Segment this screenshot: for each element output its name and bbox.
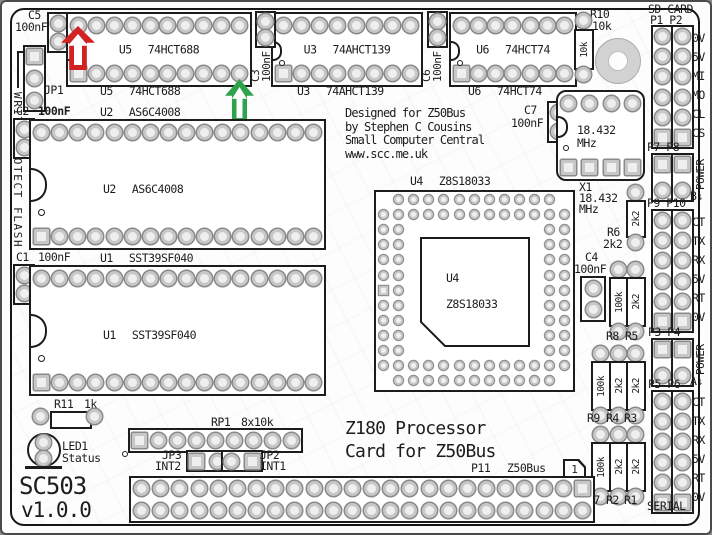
pad: [125, 375, 140, 390]
pad: [655, 342, 670, 357]
r4-ref: R4: [606, 412, 619, 424]
pga-pad: [470, 195, 479, 204]
credits-text: Designed for Z50Bus by Stephen C Cousins…: [345, 107, 484, 161]
resistor-r5: 2k2: [626, 277, 646, 327]
pad: [172, 503, 187, 518]
pga-pad: [379, 316, 388, 325]
pad: [675, 294, 690, 309]
socket-u2: U2AS6C4008: [29, 119, 326, 250]
pga-pad: [500, 376, 509, 385]
pga-pad: [545, 225, 554, 234]
pad: [249, 481, 264, 496]
pad: [230, 503, 245, 518]
pad: [655, 110, 670, 125]
r11-ref: R11: [54, 398, 73, 410]
u5-sublabel: U574HCT688: [100, 85, 180, 97]
down-arrow-icon: ↓: [696, 189, 702, 203]
c6-label: C6100nF: [421, 44, 443, 82]
pga-pad: [470, 210, 479, 219]
u3-pin1-dot: [279, 60, 285, 66]
pad: [125, 66, 140, 81]
power-a-tag: A↓: [690, 375, 703, 387]
green-up-arrow-icon: [225, 79, 254, 123]
pad: [34, 271, 49, 286]
u5-inner-label: U574HCT688: [68, 43, 250, 55]
pga-pad: [455, 210, 464, 219]
pad: [179, 125, 194, 140]
r1-ref: R1: [624, 494, 637, 506]
pad: [604, 160, 619, 175]
u6-pin1-dot: [457, 60, 463, 66]
pad: [33, 409, 48, 424]
u4-inner-ref: U4: [446, 272, 459, 284]
p5-pin-5v: 5V: [692, 453, 705, 465]
pga-pad: [560, 210, 569, 219]
pga-pad: [394, 331, 403, 340]
resistor-r3: 2k2: [626, 361, 646, 411]
c7-ref: C7: [524, 104, 537, 116]
pad: [655, 274, 670, 289]
pad: [143, 271, 158, 286]
pad: [125, 18, 140, 33]
pga-pad: [560, 286, 569, 295]
pad: [306, 271, 321, 286]
pad: [312, 66, 327, 81]
pad: [161, 125, 176, 140]
pad: [107, 271, 122, 286]
pad: [576, 13, 591, 28]
pad: [276, 66, 291, 81]
pad: [582, 160, 597, 175]
u2-notch: [31, 168, 47, 202]
pad: [170, 433, 185, 448]
pad: [270, 229, 285, 244]
pad: [367, 18, 382, 33]
mounting-hole: [595, 38, 641, 84]
u3-sublabel: U374AHCT139: [297, 85, 384, 97]
pad: [252, 375, 267, 390]
pad: [537, 503, 552, 518]
pad: [505, 18, 520, 33]
connector-p11-z50bus: [129, 476, 595, 523]
pad: [132, 433, 147, 448]
c1-value: 100nF: [38, 251, 70, 263]
sd-pin-mo: MO: [692, 89, 705, 101]
pga-pad: [560, 240, 569, 249]
p5-pin-tx: TX: [692, 415, 705, 427]
pga-pad: [560, 316, 569, 325]
pga-pad: [379, 210, 388, 219]
pad: [270, 271, 285, 286]
pga-pad: [379, 301, 388, 310]
pad: [628, 262, 643, 277]
pad: [179, 375, 194, 390]
pga-pad: [439, 361, 448, 370]
r8-ref: R8: [606, 330, 619, 342]
pad: [87, 409, 102, 424]
pad: [230, 481, 245, 496]
pad: [143, 66, 158, 81]
pga-pad: [394, 316, 403, 325]
pad: [488, 18, 503, 33]
pad: [107, 66, 122, 81]
pad: [628, 346, 643, 361]
sd-pin-cs: CS: [692, 127, 705, 139]
pad: [576, 67, 591, 82]
pga-pad: [379, 286, 388, 295]
pad: [196, 18, 211, 33]
pad: [441, 481, 456, 496]
pad: [611, 346, 626, 361]
pad: [233, 229, 248, 244]
u1-pin1-dot: [38, 355, 45, 362]
p5-p6-label: P5 P6: [648, 378, 680, 390]
pad: [70, 271, 85, 286]
pad: [479, 503, 494, 518]
pga-pad: [394, 286, 403, 295]
led1-cathode-bar: [25, 466, 62, 469]
pga-pad: [545, 210, 554, 219]
pad: [675, 274, 690, 289]
p3-p4-label: P3 P4: [648, 326, 680, 338]
pga-pad: [530, 210, 539, 219]
pad: [383, 481, 398, 496]
pga-pad: [379, 271, 388, 280]
pad: [582, 96, 597, 111]
pad: [326, 481, 341, 496]
pad: [189, 454, 204, 469]
c5-value: 100nF: [15, 21, 47, 33]
power-b-label: POWER: [695, 146, 706, 190]
pad: [232, 18, 247, 33]
pga-pad: [424, 376, 433, 385]
resistor-r9: 100k: [591, 361, 611, 411]
pad: [288, 271, 303, 286]
jp3-signal: INT2: [155, 460, 181, 472]
board-title: Z180 Processor Card for Z50Bus: [345, 417, 496, 463]
rp1-ref: RP1: [211, 416, 230, 428]
jumper-jp1: [23, 45, 46, 112]
pad: [88, 375, 103, 390]
pad: [196, 66, 211, 81]
pad: [215, 125, 230, 140]
pad: [125, 125, 140, 140]
pad: [288, 375, 303, 390]
pad: [540, 66, 555, 81]
pga-pad: [545, 316, 554, 325]
pad: [655, 294, 670, 309]
pga-pad: [394, 361, 403, 370]
pad: [270, 125, 285, 140]
c1-ref: C1: [16, 251, 29, 263]
pga-pad: [515, 361, 524, 370]
jp1-label: JP1: [44, 84, 63, 96]
pad: [153, 481, 168, 496]
x1-unit: MHz: [579, 203, 598, 215]
pad: [385, 18, 400, 33]
pad: [270, 375, 285, 390]
pad: [655, 455, 670, 470]
pga-pad: [545, 301, 554, 310]
pga-pad: [545, 376, 554, 385]
pga-pad: [455, 361, 464, 370]
pad: [189, 433, 204, 448]
pad: [307, 481, 322, 496]
pad: [385, 66, 400, 81]
pad: [160, 66, 175, 81]
pad: [252, 229, 267, 244]
p5-pin-rt: RT: [692, 472, 705, 484]
pad: [143, 229, 158, 244]
pga-pad: [379, 225, 388, 234]
pad: [211, 503, 226, 518]
pad: [172, 481, 187, 496]
pad: [287, 481, 302, 496]
pga-pad: [409, 195, 418, 204]
pad: [249, 503, 264, 518]
pad: [655, 157, 670, 172]
pad: [233, 375, 248, 390]
crystal-socket: 18.432 MHz: [556, 90, 645, 181]
pga-pad: [394, 376, 403, 385]
pad: [460, 503, 475, 518]
pad: [430, 14, 445, 29]
p5-pin-rx: RX: [692, 434, 705, 446]
resistor-r11: [50, 411, 92, 429]
pad: [88, 125, 103, 140]
pad: [70, 375, 85, 390]
pad: [197, 125, 212, 140]
pga-pad: [424, 210, 433, 219]
pad: [349, 66, 364, 81]
pad: [675, 414, 690, 429]
sd-pin-5v: 5V: [692, 51, 705, 63]
pga-pad: [394, 225, 403, 234]
pad: [628, 235, 643, 250]
pad: [258, 30, 273, 45]
sd-pin-0v: 0V: [692, 32, 705, 44]
pad: [233, 271, 248, 286]
pga-pad: [409, 361, 418, 370]
jp2-signal: INT1: [260, 460, 286, 472]
pga-pad: [515, 195, 524, 204]
pad: [288, 229, 303, 244]
crystal-unit: MHz: [577, 137, 596, 149]
pad: [294, 66, 309, 81]
pad: [36, 451, 51, 466]
p9-pin-tx: TX: [692, 235, 705, 247]
pad: [471, 66, 486, 81]
crystal-pin1-dot: [563, 145, 569, 151]
pga-pad: [470, 361, 479, 370]
resistor-r10: 10k: [574, 29, 594, 70]
connector-p6: [671, 390, 694, 514]
pad: [34, 229, 49, 244]
r2-ref: R2: [606, 494, 619, 506]
pad: [402, 503, 417, 518]
led1-label: Status: [62, 452, 101, 464]
pad: [258, 14, 273, 29]
pga-pad: [545, 255, 554, 264]
u4-inner-part: Z8S18033: [446, 298, 497, 310]
pad: [556, 503, 571, 518]
pad: [655, 213, 670, 228]
pad: [383, 503, 398, 518]
pad: [227, 433, 242, 448]
red-up-arrow-icon: [61, 26, 95, 70]
u4-label: U4Z8S18033: [410, 175, 490, 187]
pad: [134, 481, 149, 496]
pad: [364, 481, 379, 496]
pad: [224, 454, 239, 469]
pad: [655, 475, 670, 490]
connector-p2: [671, 25, 694, 149]
pad: [655, 69, 670, 84]
pad: [675, 49, 690, 64]
pad: [70, 125, 85, 140]
pad: [312, 18, 327, 33]
c2-ref: C2: [16, 105, 29, 117]
pad: [675, 110, 690, 125]
z50bus-name: Z50Bus: [507, 462, 546, 474]
pad: [107, 229, 122, 244]
pad: [675, 455, 690, 470]
pad: [151, 433, 166, 448]
pga-pad: [455, 376, 464, 385]
p7-p8-label: P7 P8: [647, 141, 679, 153]
pad: [276, 18, 291, 33]
pga-pad: [545, 361, 554, 370]
pad: [215, 229, 230, 244]
pad: [403, 18, 418, 33]
pga-pad: [424, 361, 433, 370]
p9-pin-rx: RX: [692, 254, 705, 266]
pad: [367, 66, 382, 81]
c4-value: 100nF: [574, 263, 606, 275]
pad: [523, 66, 538, 81]
pga-pad: [560, 255, 569, 264]
pad: [586, 302, 601, 317]
c7-value: 100nF: [511, 117, 543, 129]
pad: [675, 69, 690, 84]
u2-inner-label: U2AS6C4008: [103, 183, 183, 195]
pga-pad: [530, 195, 539, 204]
pad: [604, 96, 619, 111]
pad: [471, 18, 486, 33]
pad: [143, 18, 158, 33]
rp1-value: 8x10k: [241, 416, 273, 428]
u3-inner-label: U374AHCT139: [273, 43, 421, 55]
pad: [430, 30, 445, 45]
pga-pad: [379, 240, 388, 249]
resistor-r6: 2k2: [626, 200, 646, 238]
crystal-freq: 18.432: [577, 124, 616, 136]
pad: [160, 18, 175, 33]
pad: [611, 427, 626, 442]
p5-pin-0v: 0V: [692, 491, 705, 503]
pad: [265, 433, 280, 448]
write-protect-bracket: [17, 51, 19, 88]
pad: [211, 481, 226, 496]
pga-pad: [500, 195, 509, 204]
jumper-jp2: [221, 450, 263, 472]
pad: [233, 125, 248, 140]
pga-pad: [394, 301, 403, 310]
pad: [505, 66, 520, 81]
pad: [52, 375, 67, 390]
pga-pad: [439, 210, 448, 219]
pad: [675, 157, 690, 172]
pad: [655, 49, 670, 64]
pad: [52, 229, 67, 244]
pga-pad: [500, 210, 509, 219]
pga-pad: [560, 346, 569, 355]
u1-inner-label: U1SST39SF040: [103, 329, 196, 341]
pad: [307, 503, 322, 518]
pad: [675, 90, 690, 105]
sd-pin-mi: MI: [692, 70, 705, 82]
pad: [675, 213, 690, 228]
pad: [252, 125, 267, 140]
connector-p10: [671, 209, 694, 333]
pga-pad: [394, 255, 403, 264]
pad: [675, 29, 690, 44]
pad: [625, 160, 640, 175]
sd-pin-cl: CL: [692, 108, 705, 120]
r5-ref: R5: [625, 330, 638, 342]
pad: [523, 18, 538, 33]
pga-pad: [455, 195, 464, 204]
pad: [178, 66, 193, 81]
pad: [52, 271, 67, 286]
pad: [107, 125, 122, 140]
rp1-pin1-dot: [122, 451, 128, 457]
pad: [575, 503, 590, 518]
pad: [197, 375, 212, 390]
pad: [326, 503, 341, 518]
pad: [245, 454, 260, 469]
pga-pad: [394, 240, 403, 249]
pad: [422, 503, 437, 518]
socket-u4-pga: U4 Z8S18033: [374, 190, 575, 392]
pad: [284, 433, 299, 448]
pga-pad: [379, 346, 388, 355]
pad: [246, 433, 261, 448]
pad: [161, 229, 176, 244]
pad: [488, 66, 503, 81]
pga-pad: [560, 301, 569, 310]
pga-pad: [515, 376, 524, 385]
pad: [215, 271, 230, 286]
u2-pin1-dot: [38, 209, 45, 216]
pad: [364, 503, 379, 518]
pad: [330, 18, 345, 33]
pga-pad: [545, 271, 554, 280]
pad: [345, 503, 360, 518]
pad: [192, 481, 207, 496]
pad: [197, 229, 212, 244]
pga-pad: [409, 210, 418, 219]
power-b-tag: B↓: [690, 190, 703, 202]
pga-pad: [485, 376, 494, 385]
pad: [88, 271, 103, 286]
pad: [517, 503, 532, 518]
pad: [460, 481, 475, 496]
u1-sublabel: U1SST39SF040: [100, 252, 193, 264]
pad: [306, 229, 321, 244]
pad: [306, 125, 321, 140]
pga-pad: [485, 195, 494, 204]
